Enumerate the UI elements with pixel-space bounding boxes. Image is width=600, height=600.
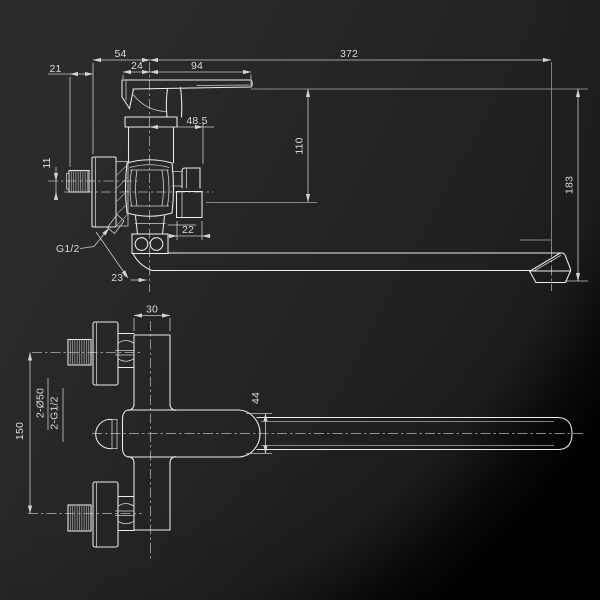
side-view-body — [125, 117, 177, 271]
dim-22: 22 — [169, 221, 211, 240]
side-view: 21 54 372 24 94 — [41, 48, 588, 292]
flange-spec-callout: 2-Ø50 — [35, 378, 49, 430]
dim-22-label: 22 — [182, 224, 194, 236]
side-view-handle — [122, 80, 252, 117]
technical-drawing: 21 54 372 24 94 — [0, 0, 600, 600]
dim-110-label: 110 — [294, 137, 306, 154]
dim-372: 372 — [150, 48, 551, 60]
dim-21-label: 21 — [49, 63, 61, 75]
aerator — [530, 271, 571, 283]
front-thread-spec-label: 2-G1/2 — [49, 396, 61, 429]
dim-372-label: 372 — [340, 48, 358, 60]
dim-110: 110 — [294, 89, 309, 202]
thread-spec-callout: G1/2 — [56, 228, 109, 255]
angle-23-callout: 23° — [96, 232, 147, 284]
dim-48-5-label: 48.5 — [186, 115, 207, 127]
dim-48-5: 48.5 — [150, 115, 214, 164]
diverter-button — [150, 238, 163, 251]
drawing-canvas: 21 54 372 24 94 — [0, 0, 600, 600]
dim-150-label: 150 — [14, 422, 26, 440]
dim-54-label: 54 — [114, 48, 126, 60]
thread-spec-label: G1/2 — [56, 243, 80, 255]
dim-183: 183 — [564, 89, 589, 281]
dim-11: 11 — [41, 157, 56, 199]
dim-94-label: 94 — [191, 60, 203, 72]
front-view: 30 44 150 2-Ø50 2-G1/2 — [14, 304, 584, 560]
dim-94: 94 — [150, 60, 251, 86]
angle-23-label: 23° — [111, 272, 127, 284]
side-view-eccentric-union — [108, 162, 129, 234]
dim-30-label: 30 — [146, 304, 158, 316]
dim-11-label: 11 — [41, 157, 53, 168]
front-view-upper-connection — [68, 322, 134, 385]
dim-21: 21 — [48, 63, 93, 167]
dim-150: 150 — [14, 353, 30, 514]
flange-spec-label: 2-Ø50 — [35, 388, 47, 418]
dim-44-label: 44 — [250, 392, 262, 404]
side-view-spout — [152, 240, 571, 283]
dim-44: 44 — [246, 392, 272, 454]
dim-54: 54 — [93, 48, 150, 60]
front-thread-spec-callout: 2-G1/2 — [49, 388, 64, 442]
front-view-lower-connection — [68, 482, 134, 547]
front-view-centerlines — [28, 321, 584, 559]
front-view-pipes — [129, 335, 176, 530]
dim-24-label: 24 — [131, 60, 143, 72]
dim-183-label: 183 — [564, 176, 576, 194]
dim-30: 30 — [134, 304, 170, 332]
diverter-button — [135, 238, 148, 251]
dim-24: 24 — [123, 60, 150, 79]
body-end-knob — [96, 419, 112, 448]
side-view-centerlines — [48, 62, 588, 292]
